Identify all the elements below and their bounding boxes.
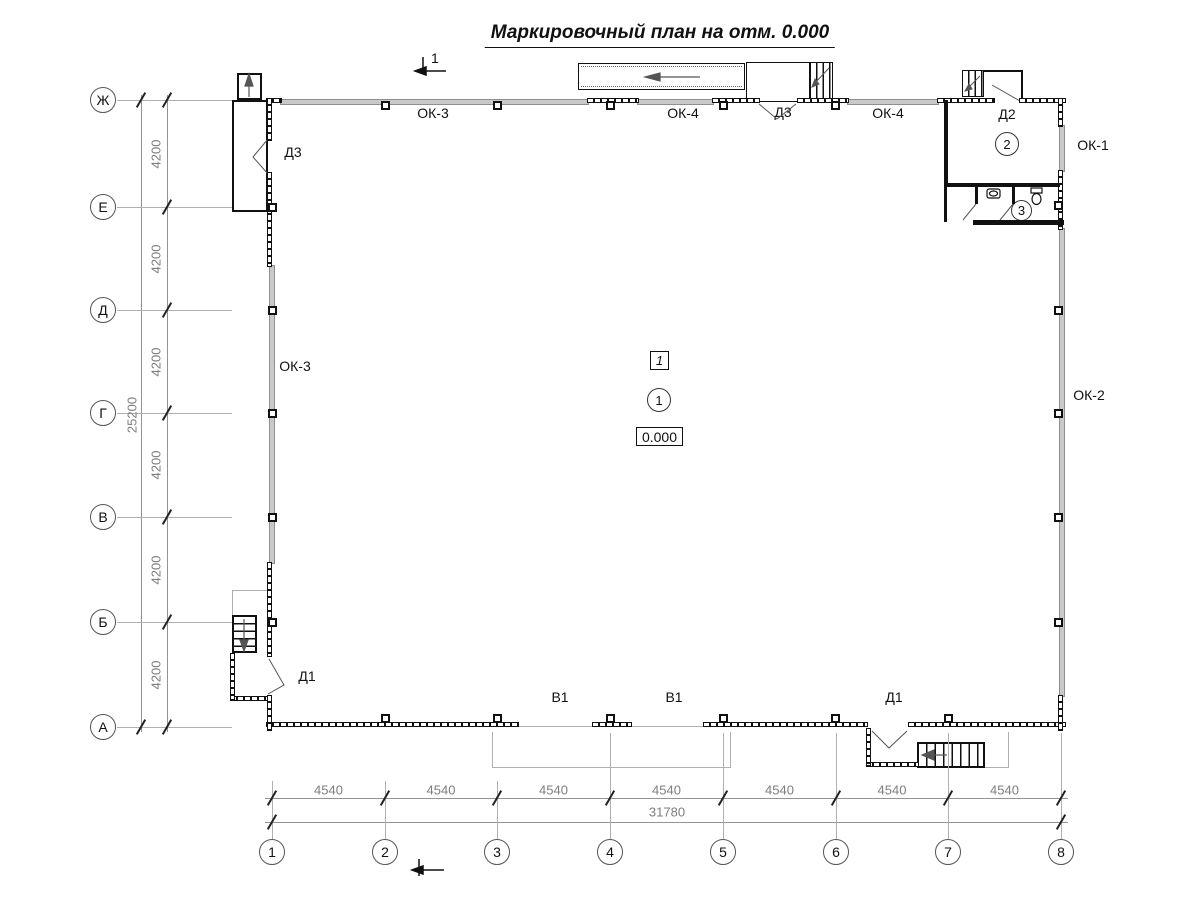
dim-label: 4200 [149,244,164,273]
axis-bubble-7: 7 [935,839,961,865]
door-swing-lines [253,85,1020,748]
axis-bubble-3: 3 [484,839,510,865]
wall-segment [797,98,849,103]
gate-mark: В1 [665,689,682,705]
grid-line [948,733,949,839]
wall-segment [267,98,272,141]
dim-label: 4200 [149,347,164,376]
dim-label: 4540 [990,783,1019,798]
southwest-canopy-line [232,590,270,591]
column-marker [493,101,502,110]
column-marker [1054,409,1063,418]
window-band-wall [1059,125,1065,172]
southeast-apron-line [985,767,1009,768]
partition-wall [944,100,948,187]
dim-total-label: 25200 [125,397,140,433]
door-mark: Д2 [998,106,1015,122]
grid-line [723,733,724,839]
axis-bubble-Е: Е [90,194,116,220]
axis-bubble-Д: Д [90,297,116,323]
wall-segment [908,722,1066,727]
dim-label: 4540 [878,783,907,798]
gate-threshold [517,726,592,727]
drawing-title: Маркировочный план на отм. 0.000 [485,22,835,48]
window-mark: ОК-2 [1073,387,1105,403]
axis-bubble-А: А [90,714,116,740]
axis-bubble-В: В [90,504,116,530]
gate-apron-line [492,767,731,768]
window-mark: ОК-1 [1077,137,1109,153]
grid-line [117,207,232,208]
wall-segment [866,762,919,767]
column-marker [1054,513,1063,522]
window-mark: ОК-3 [279,358,311,374]
loading-ramp [578,63,745,90]
grid-line [117,727,232,728]
floor-plan-drawing: Маркировочный план на отм. 0.000 1 1 0.0… [0,0,1200,900]
column-marker [831,101,840,110]
partition-wall [1012,187,1015,204]
column-marker [1054,201,1063,210]
axis-bubble-Г: Г [90,400,116,426]
window-band-wall [847,99,939,105]
grid-line [610,733,611,839]
column-marker [606,714,615,723]
grid-line [117,622,232,623]
axis-bubble-4: 4 [597,839,623,865]
window-band-wall [637,99,714,105]
column-marker [719,714,728,723]
column-marker [268,618,277,627]
door-mark: Д1 [885,689,902,705]
elevation-mark: 0.000 [636,427,683,446]
dim-total-label: 31780 [649,805,685,820]
wall-segment [267,695,272,731]
grid-line [836,733,837,839]
grid-line [117,310,232,311]
wall-segment [230,696,272,701]
zone-square-mark: 1 [650,351,669,370]
grid-line [385,781,386,839]
southeast-apron-line [1008,732,1009,768]
column-marker [1054,618,1063,627]
ramp-landing [746,62,810,102]
section-mark-number: 1 [431,50,439,66]
column-marker [381,714,390,723]
grid-line [117,100,232,101]
door-mark: Д1 [298,668,315,684]
dim-label: 4540 [314,783,343,798]
grid-line [117,517,232,518]
column-marker [606,101,615,110]
sink-icon [987,189,1000,198]
column-marker [493,714,502,723]
wall-segment [230,653,235,700]
grid-line [497,781,498,839]
column-marker [268,306,277,315]
dim-label: 4540 [539,783,568,798]
northeast-stair [962,70,984,97]
column-marker [1054,306,1063,315]
ramp-steps [810,62,833,102]
section-mark [412,57,446,876]
dim-label: 4200 [149,139,164,168]
column-marker [719,101,728,110]
axis-bubble-Ж: Ж [90,87,116,113]
wall-segment [267,172,272,267]
gate-mark: В1 [551,689,568,705]
window-band-wall [280,99,589,105]
wall-segment [266,722,519,727]
axis-bubble-5: 5 [710,839,736,865]
wall-segment [1058,695,1063,731]
gate-threshold [630,726,703,727]
column-marker [268,513,277,522]
axis-bubble-6: 6 [823,839,849,865]
column-marker [944,714,953,723]
dim-label: 4540 [427,783,456,798]
column-marker [381,101,390,110]
wall-segment [267,562,272,657]
dim-label: 4200 [149,660,164,689]
west-porch-exit [237,73,262,100]
dim-label: 4200 [149,451,164,480]
toilet-icon [1031,188,1042,205]
window-mark: ОК-3 [417,105,449,121]
axis-bubble-8: 8 [1048,839,1074,865]
gate-apron-line [730,732,731,768]
window-mark: ОК-4 [667,105,699,121]
column-marker [831,714,840,723]
partition-wall [975,187,978,204]
room-number-bubble: 2 [995,132,1019,156]
dim-label: 4540 [652,783,681,798]
door-mark: Д3 [284,144,301,160]
linework-overlay [0,0,1200,900]
dim-label: 4200 [149,555,164,584]
window-mark: ОК-4 [872,105,904,121]
southeast-stair [917,742,985,768]
partition-wall [944,183,1060,187]
partition-wall [973,220,1064,225]
axis-bubble-1: 1 [259,839,285,865]
column-marker [268,409,277,418]
column-marker [268,203,277,212]
wall-segment [866,728,871,766]
southwest-stair [232,615,257,653]
axis-bubble-2: 2 [372,839,398,865]
axis-bubble-Б: Б [90,609,116,635]
west-porch [232,100,268,212]
door-mark: Д3 [774,104,791,120]
room-number-bubble: 1 [647,388,671,412]
gate-apron-line [492,732,493,768]
grid-line [272,781,273,839]
wall-segment [1058,98,1063,127]
partition-wall [944,187,947,222]
dim-label: 4540 [765,783,794,798]
